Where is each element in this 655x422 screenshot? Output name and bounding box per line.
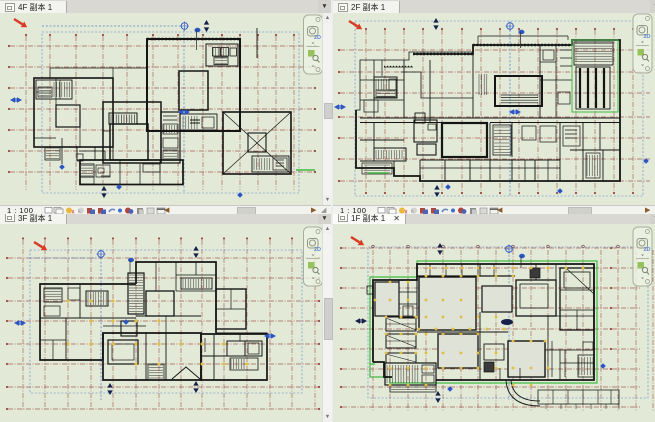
- svg-text:2D: 2D: [644, 34, 651, 40]
- svg-text:2D: 2D: [314, 247, 321, 253]
- svg-text:2D: 2D: [644, 247, 651, 253]
- svg-text:2D: 2D: [314, 35, 321, 41]
